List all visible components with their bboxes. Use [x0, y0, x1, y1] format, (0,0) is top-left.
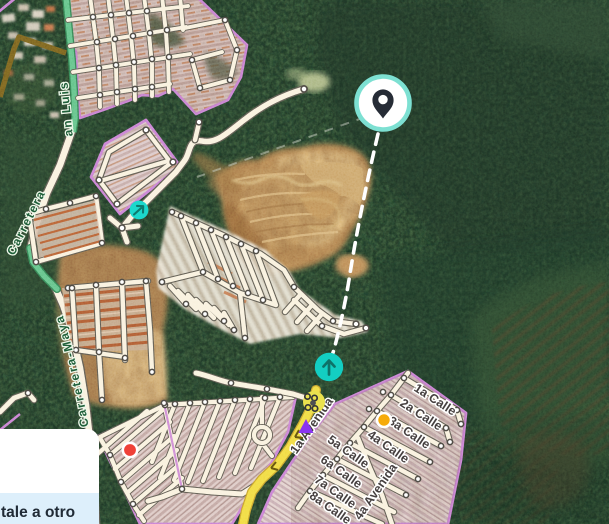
- svg-text:tale a otro: tale a otro: [1, 504, 75, 521]
